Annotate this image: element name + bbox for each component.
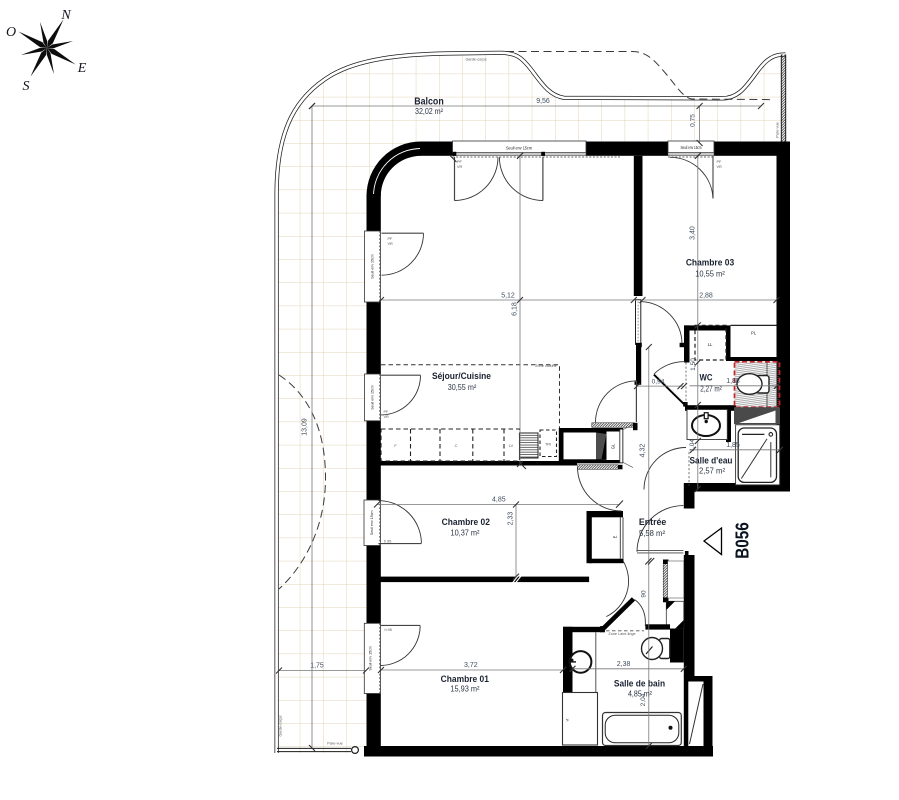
svg-text:VR: VR — [457, 165, 463, 169]
svg-text:WC: WC — [700, 373, 713, 384]
svg-text:PL: PL — [751, 331, 757, 336]
svg-text:Seuil env 15cm: Seuil env 15cm — [681, 145, 702, 150]
svg-text:Chambre 03: Chambre 03 — [686, 258, 734, 269]
svg-text:10,55 m²: 10,55 m² — [695, 269, 725, 278]
svg-text:3,72: 3,72 — [464, 662, 478, 669]
svg-text:1,88: 1,88 — [726, 378, 740, 385]
svg-text:Seuil env 15cm: Seuil env 15cm — [369, 646, 373, 671]
svg-text:PF: PF — [457, 160, 463, 164]
svg-text:6,18: 6,18 — [511, 302, 518, 316]
svg-text:VR: VR — [384, 415, 390, 419]
svg-text:Salle d'eau: Salle d'eau — [690, 456, 733, 467]
svg-text:15,93 m²: 15,93 m² — [450, 685, 479, 694]
svg-text:3,40: 3,40 — [689, 226, 696, 240]
svg-text:TRI: TRI — [545, 443, 551, 447]
svg-text:2,88: 2,88 — [699, 292, 713, 299]
svg-text:Seuil env 15cm: Seuil env 15cm — [506, 145, 532, 150]
svg-text:VR: VR — [388, 242, 394, 246]
svg-text:Entrée: Entrée — [639, 517, 667, 528]
svg-text:1,75: 1,75 — [310, 663, 324, 670]
svg-text:4,85: 4,85 — [492, 497, 506, 504]
svg-text:0,75: 0,75 — [690, 114, 697, 127]
svg-text:C: C — [455, 444, 458, 448]
svg-text:vt: vt — [566, 719, 570, 722]
svg-text:Seuil env 15cm: Seuil env 15cm — [371, 254, 375, 279]
svg-text:4,85 m²: 4,85 m² — [628, 689, 652, 698]
svg-text:90: 90 — [641, 590, 648, 598]
svg-text:1,50: 1,50 — [690, 358, 697, 371]
svg-text:h 95: h 95 — [384, 540, 391, 544]
svg-text:Pare-vue: Pare-vue — [776, 122, 780, 137]
svg-text:Zone cuisine: Zone cuisine — [535, 364, 557, 368]
svg-text:10,37 m²: 10,37 m² — [451, 528, 480, 537]
svg-text:PF: PF — [717, 160, 723, 164]
svg-text:1,85: 1,85 — [726, 442, 740, 449]
svg-text:Zone Lave-linge: Zone Lave-linge — [608, 632, 635, 636]
svg-text:1,04: 1,04 — [689, 439, 696, 452]
svg-text:2,57 m²: 2,57 m² — [699, 466, 725, 475]
svg-text:h 95: h 95 — [385, 628, 392, 632]
svg-text:0,94: 0,94 — [652, 378, 665, 385]
svg-text:PF: PF — [384, 410, 390, 414]
svg-text:LV: LV — [509, 444, 514, 448]
svg-text:E: E — [613, 535, 618, 538]
svg-text:Seuil env 15cm: Seuil env 15cm — [370, 511, 374, 536]
svg-text:Pare-vue: Pare-vue — [327, 742, 342, 746]
svg-text:32,02 m²: 32,02 m² — [415, 107, 443, 116]
svg-text:2,33: 2,33 — [507, 512, 514, 526]
svg-text:Chambre 02: Chambre 02 — [442, 517, 490, 528]
svg-text:4,32: 4,32 — [640, 444, 647, 458]
svg-text:9,56: 9,56 — [536, 98, 550, 105]
svg-text:Balcon: Balcon — [414, 95, 444, 107]
svg-text:VR: VR — [717, 165, 723, 169]
svg-text:GL: GL — [611, 443, 616, 449]
svg-text:PF: PF — [388, 237, 394, 241]
svg-text:E: E — [77, 61, 87, 76]
svg-text:5,12: 5,12 — [501, 292, 515, 299]
svg-text:O: O — [6, 25, 16, 40]
svg-text:B056: B056 — [733, 522, 753, 559]
svg-text:Garde-corps: Garde-corps — [279, 715, 283, 736]
svg-text:N: N — [60, 8, 71, 23]
svg-text:13,09: 13,09 — [302, 418, 309, 436]
svg-text:5,58 m²: 5,58 m² — [639, 529, 665, 538]
svg-text:Séjour/Cuisine: Séjour/Cuisine — [432, 371, 491, 382]
svg-text:S: S — [23, 79, 30, 94]
svg-text:LL: LL — [708, 342, 713, 347]
svg-text:Garde-corps: Garde-corps — [465, 58, 486, 62]
svg-text:2,38: 2,38 — [617, 661, 631, 668]
svg-text:Seuil env 15cm: Seuil env 15cm — [371, 385, 375, 410]
svg-text:Salle de bain: Salle de bain — [614, 678, 665, 689]
svg-text:2,27 m²: 2,27 m² — [700, 384, 722, 393]
svg-text:30,55 m²: 30,55 m² — [448, 383, 477, 392]
svg-text:Chambre 01: Chambre 01 — [441, 674, 490, 685]
